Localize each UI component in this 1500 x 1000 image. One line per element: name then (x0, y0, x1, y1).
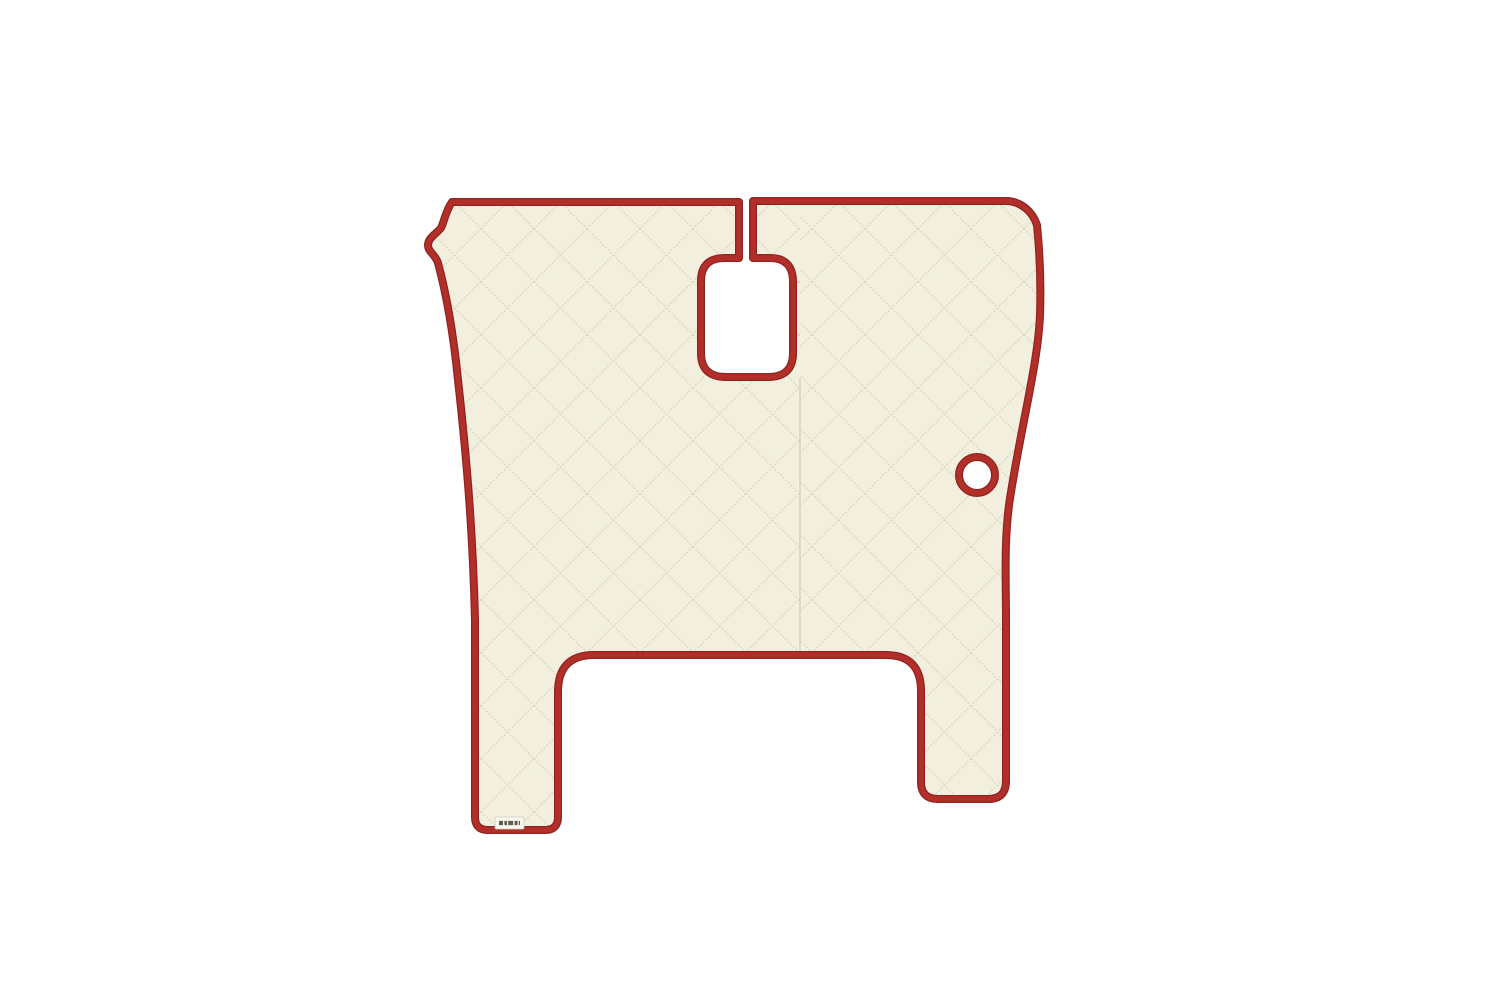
product-photo (0, 0, 1500, 1000)
brand-tag (495, 817, 524, 829)
floor-mat-illustration (0, 0, 1500, 1000)
round-cutout (959, 457, 995, 493)
